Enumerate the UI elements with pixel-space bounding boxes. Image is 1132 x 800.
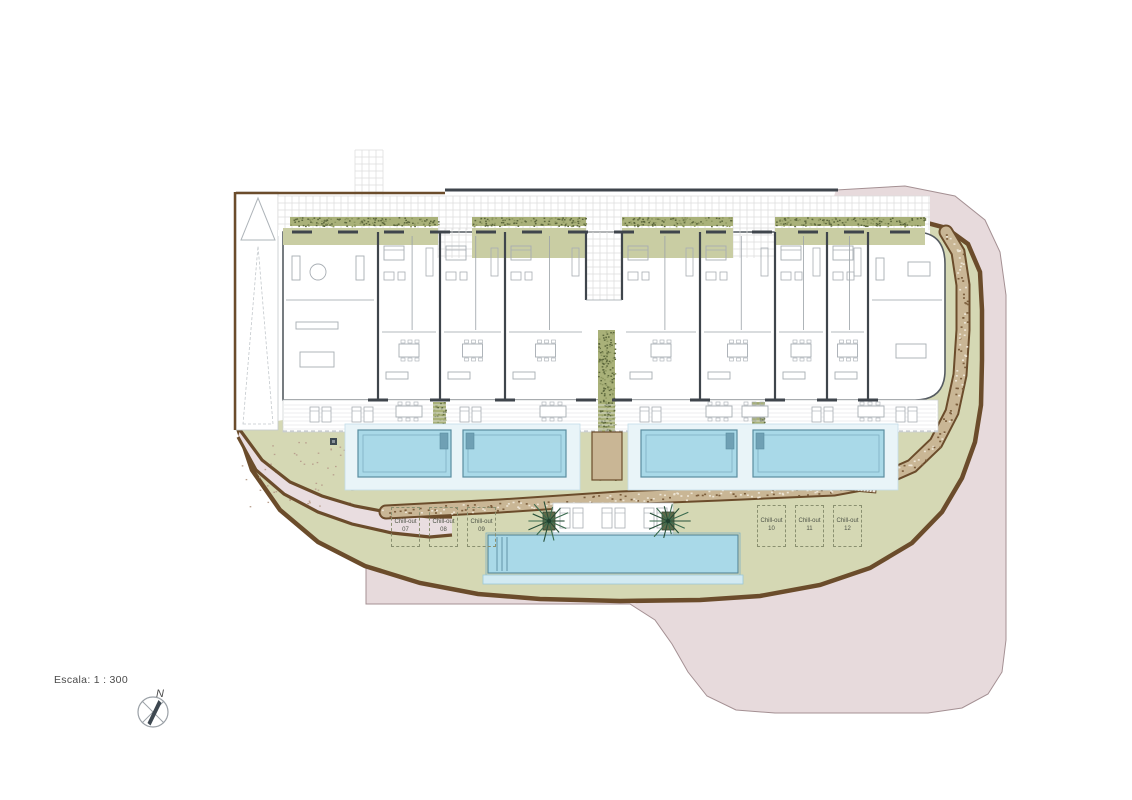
chill-out-label: Chill-out [760, 518, 782, 526]
chill-out-number: 07 [402, 527, 409, 535]
chill-out-number: 11 [806, 526, 812, 534]
chill-out-label: Chill-out [470, 519, 492, 527]
scale-label: Escala: 1 : 300 [54, 674, 128, 686]
driveway-ramp [235, 192, 278, 430]
north-label: N [156, 688, 164, 700]
site-plan-page: N Chill-out 07 Chill-out 08 Chill-out 09… [0, 0, 1132, 800]
chill-out-number: 09 [478, 527, 485, 535]
hedge [775, 217, 926, 227]
paving-grid [355, 150, 383, 196]
chill-out-label: Chill-out [432, 519, 454, 527]
chill-out-label: Chill-out [798, 518, 820, 526]
chill-out-label: Chill-out [836, 518, 858, 526]
chill-out-label: Chill-out [394, 519, 416, 527]
chill-out-zone: Chill-out 10 [757, 505, 786, 547]
site-plan-drawing: N [0, 0, 1132, 800]
north-compass-icon: N [138, 688, 168, 727]
hedge [622, 217, 733, 227]
chill-out-number: 10 [768, 526, 775, 534]
chill-out-number: 12 [844, 526, 851, 534]
chill-out-zone: Chill-out 07 [391, 507, 420, 547]
chill-out-zone: Chill-out 12 [833, 505, 862, 547]
chill-out-zone: Chill-out 09 [467, 507, 496, 547]
hedge [472, 217, 587, 227]
chill-out-zone: Chill-out 08 [429, 507, 458, 547]
hedge [290, 217, 440, 227]
chill-out-zone: Chill-out 11 [795, 505, 824, 547]
chill-out-number: 08 [440, 527, 447, 535]
